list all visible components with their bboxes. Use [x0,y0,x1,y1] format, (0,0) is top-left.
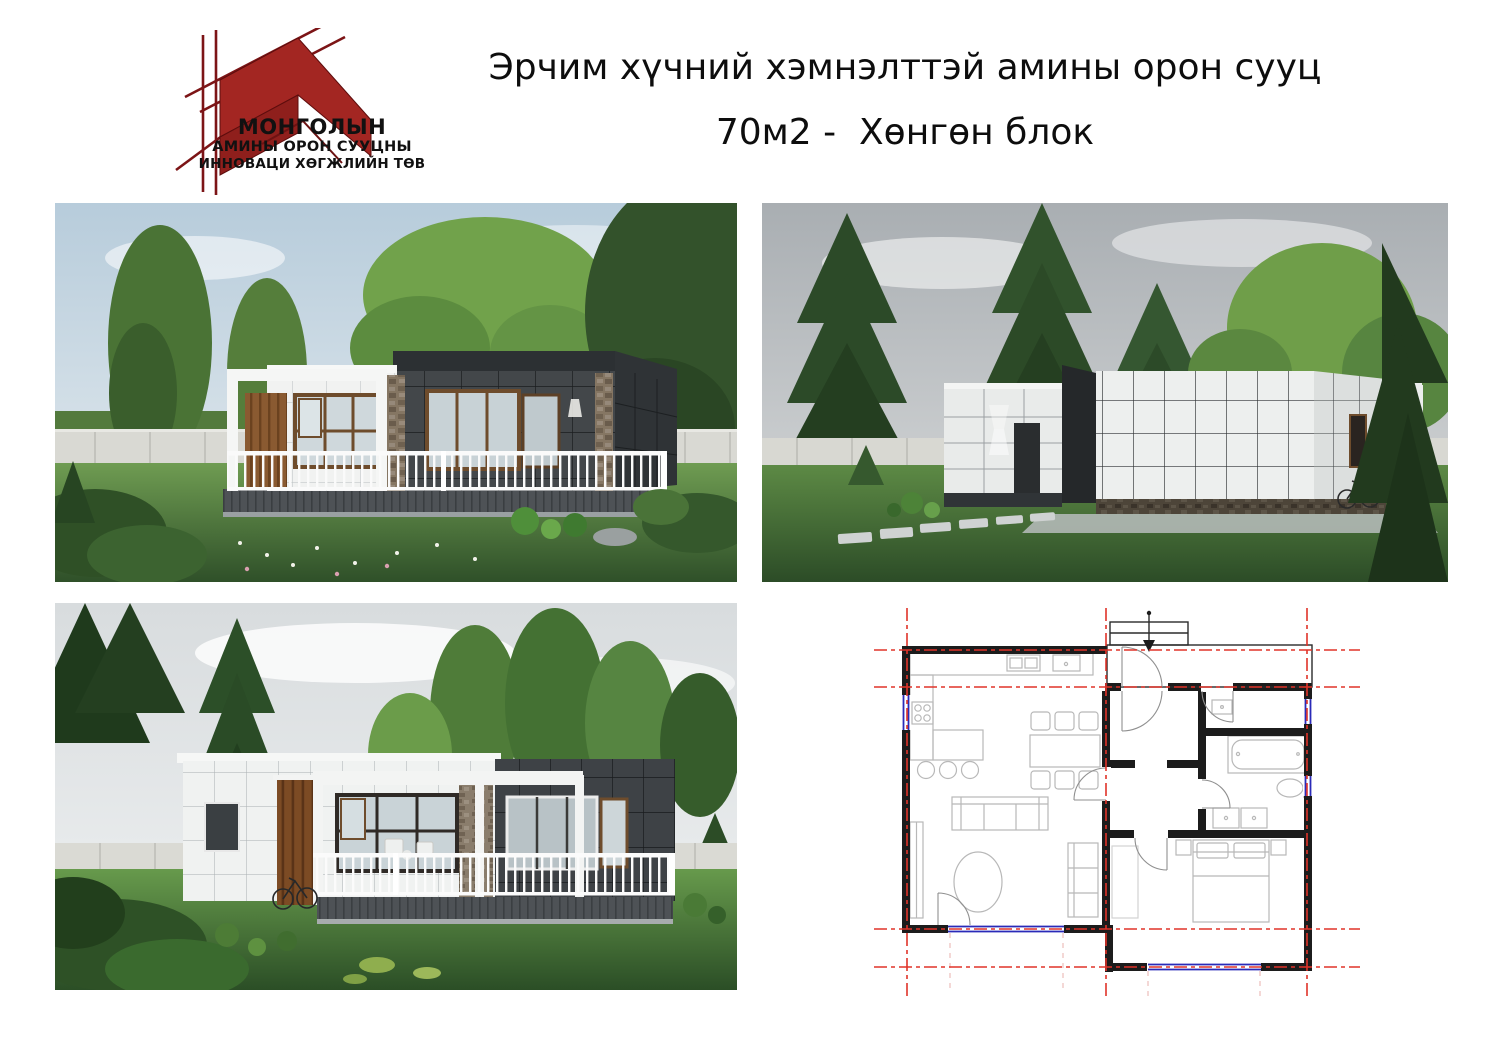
render3-house [177,753,675,924]
logo-text-line1: МОНГОЛЫН [198,116,426,138]
render1-scene [55,203,737,582]
page: МОНГОЛЫН АМИНЫ ОРОН СУУЦНЫ ИННОВАЦИ ХӨГЖ… [0,0,1500,1061]
title-line2: 70м2 - Хөнгөн блок [430,111,1380,154]
title-line1: Эрчим хүчний хэмнэлттэй амины орон сууц [430,46,1380,89]
floor-plan-entry-arrow-dot [1147,611,1151,615]
logo-text: МОНГОЛЫН АМИНЫ ОРОН СУУЦНЫ ИННОВАЦИ ХӨГЖ… [198,116,426,173]
logo-text-line2: АМИНЫ ОРОН СУУЦНЫ [198,138,426,156]
floor-plan-svg [860,600,1365,1000]
render-photo-terrace-side [55,203,737,582]
render1-house [223,351,677,517]
render2-scene [762,203,1448,582]
page-title: Эрчим хүчний хэмнэлттэй амины орон сууц … [430,46,1380,154]
floor-plan-drawing [860,600,1365,1000]
logo-text-line3: ИННОВАЦИ ХӨГЖЛИЙН ТӨВ [198,156,426,173]
render3-scene [55,603,737,990]
render-photo-terrace-front [55,603,737,990]
render-photo-entrance-side [762,203,1448,582]
